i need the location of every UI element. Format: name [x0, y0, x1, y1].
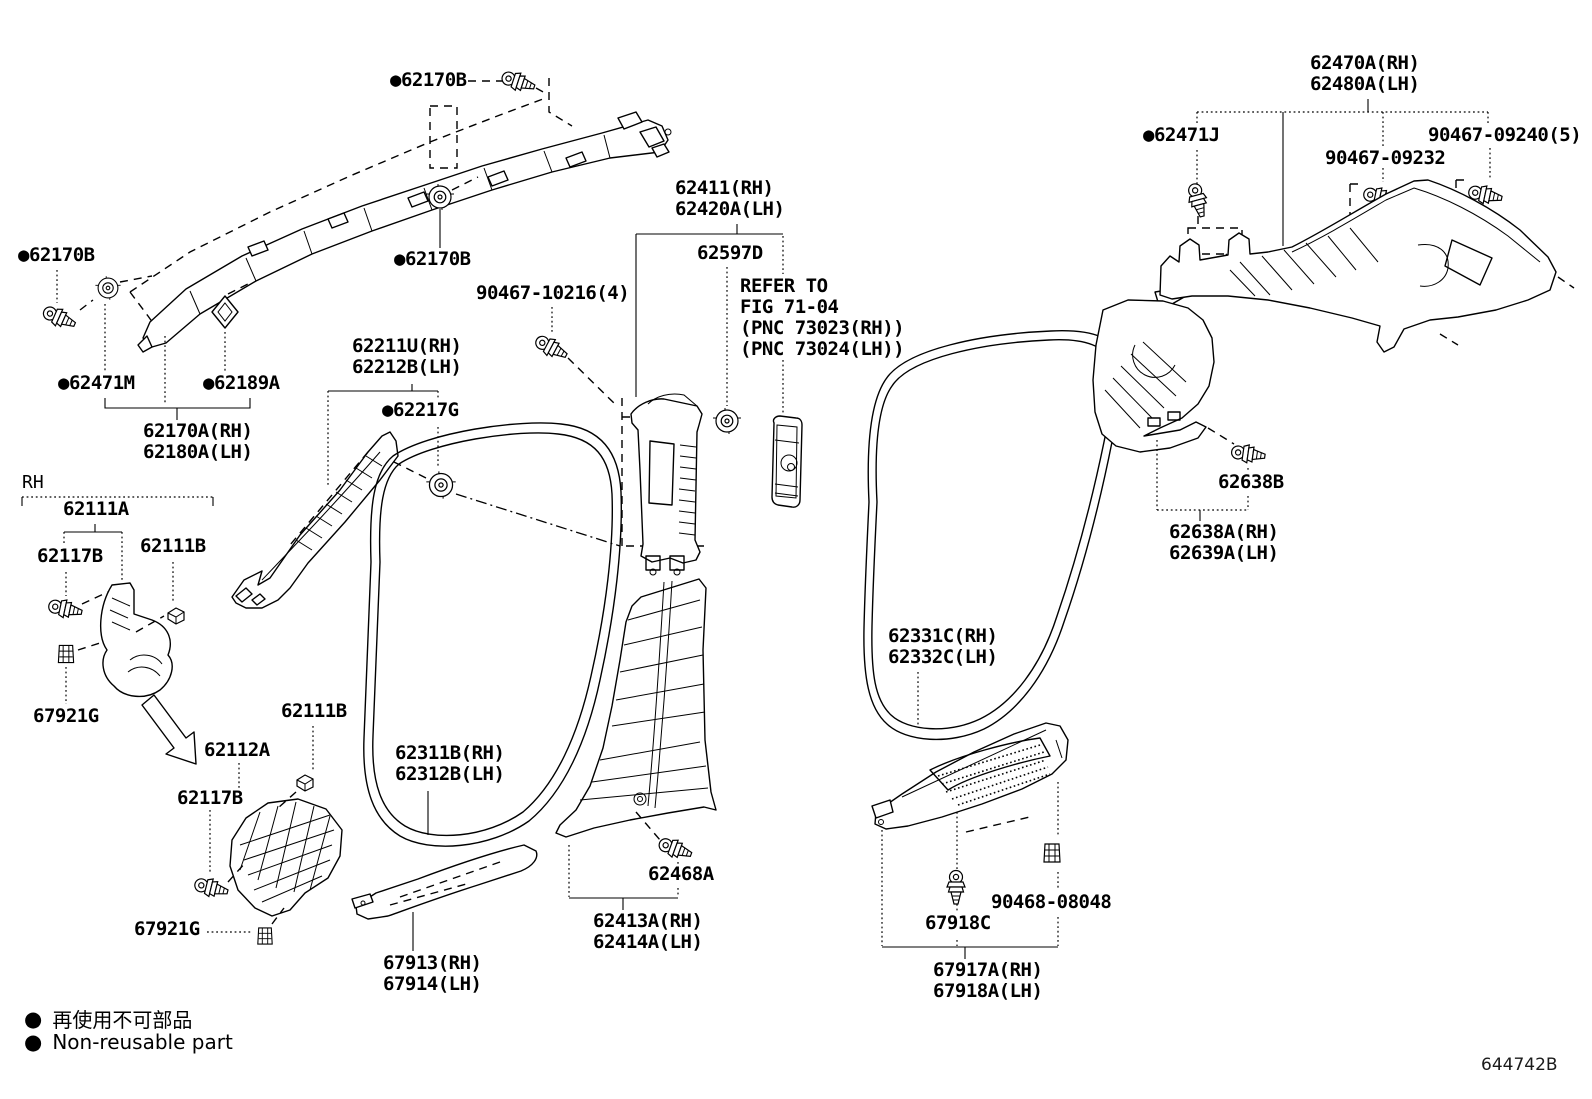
drawing-number: 644742B	[1481, 1055, 1558, 1075]
legend-en-text: Non-reusable part	[52, 1030, 232, 1054]
label-refer-note: REFER TOFIG 71-04(PNC 73023(RH))(PNC 730…	[740, 276, 904, 360]
label-62170b-left[interactable]: ●62170B	[18, 245, 95, 266]
label-62117b-1[interactable]: 62117B	[37, 546, 103, 567]
label-67921g-2[interactable]: 67921G	[134, 919, 200, 940]
label-67918c[interactable]: 67918C	[925, 913, 991, 934]
label-62217g[interactable]: ●62217G	[382, 400, 459, 421]
label-62170b-mid[interactable]: ●62170B	[394, 249, 471, 270]
legend-non-reusable-jp: ● 再使用不可部品	[24, 1004, 192, 1033]
label-67921g-1[interactable]: 67921G	[33, 706, 99, 727]
non-reusable-bullet-icon: ●	[24, 1009, 42, 1029]
label-62638a[interactable]: 62638A(RH)62639A(LH)	[1169, 522, 1278, 564]
label-62111b-2[interactable]: 62111B	[281, 701, 347, 722]
label-62331c[interactable]: 62331C(RH)62332C(LH)	[888, 626, 997, 668]
label-62411[interactable]: 62411(RH)62420A(LH)	[675, 178, 784, 220]
direction-arrow	[142, 695, 196, 764]
label-62471m[interactable]: ●62471M	[58, 373, 135, 394]
label-62597d[interactable]: 62597D	[697, 243, 763, 264]
label-90468-08048[interactable]: 90468-08048	[991, 892, 1111, 913]
label-90467-09240[interactable]: 90467-09240(5)	[1428, 125, 1581, 146]
label-62112a[interactable]: 62112A	[204, 740, 270, 761]
label-62413a[interactable]: 62413A(RH)62414A(LH)	[593, 911, 702, 953]
label-62638b[interactable]: 62638B	[1218, 472, 1284, 493]
leader-62170b-top	[468, 68, 545, 95]
label-62211u[interactable]: 62211U(RH)62212B(LH)	[352, 336, 461, 378]
label-62470a[interactable]: 62470A(RH)62480A(LH)	[1310, 53, 1419, 95]
rh-view-marker: RH	[22, 472, 44, 493]
front-scuff-plate-drawing	[352, 845, 537, 951]
label-90467-09232[interactable]: 90467-09232	[1325, 148, 1445, 169]
leader-90467-10216	[532, 307, 617, 406]
label-62471j[interactable]: ●62471J	[1143, 125, 1220, 146]
label-67917a[interactable]: 67917A(RH)67918A(LH)	[933, 960, 1042, 1002]
label-62170a[interactable]: 62170A(RH)62180A(LH)	[143, 421, 252, 463]
label-62170b-top[interactable]: ●62170B	[390, 70, 467, 91]
label-62111b-1[interactable]: 62111B	[140, 536, 206, 557]
label-62468a[interactable]: 62468A	[648, 864, 714, 885]
legend-non-reusable-en: ● Non-reusable part	[24, 1030, 233, 1054]
label-90467-10216[interactable]: 90467-10216(4)	[476, 283, 629, 304]
label-62311b[interactable]: 62311B(RH)62312B(LH)	[395, 743, 504, 785]
legend-jp-text: 再使用不可部品	[52, 1004, 192, 1033]
rear-door-weatherstrip-drawing	[864, 331, 1122, 740]
label-67913[interactable]: 67913(RH)67914(LH)	[383, 953, 481, 995]
label-62117b-2[interactable]: 62117B	[177, 788, 243, 809]
b-pillar-lower-garnish-drawing	[556, 579, 716, 910]
roof-side-rail-garnish-drawing	[130, 78, 671, 352]
label-62189a[interactable]: ●62189A	[203, 373, 280, 394]
label-62111a[interactable]: 62111A	[63, 499, 129, 520]
non-reusable-bullet-icon: ●	[24, 1032, 42, 1052]
parts-diagram-stage: ●62170B●62170B●62471M●62189A62170A(RH)62…	[0, 0, 1592, 1099]
